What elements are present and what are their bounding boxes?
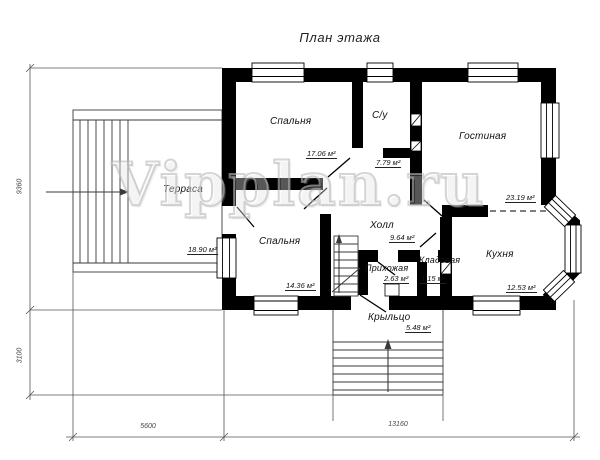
window-bathroom [367,63,393,82]
room-label-bathroom: С/у [372,110,388,121]
room-area-kitchen: 12.53 м² [506,283,537,293]
room-label-terrace: Терраса [163,184,203,195]
room-label-porch: Крыльцо [368,312,410,323]
living-door-leaf [424,200,442,216]
room-label-living: Гостиная [459,131,506,142]
room-area-hall: 9.64 м² [389,233,415,243]
room-area-bedroom2: 14.36 м² [285,281,316,291]
floor-plan-canvas: План этажа Спальня С/у Гостиная Терраса … [0,0,600,460]
door-openings [351,295,389,311]
window-bedroom2-bottom [254,296,298,315]
entrance-threshold [385,284,399,296]
room-label-bedroom2: Спальня [259,236,300,247]
room-area-terrace: 18.90 м² [187,245,218,255]
dimension-bottom-right: 13160 [368,421,428,428]
terrace-door-leaf [237,207,254,227]
bathroom-door-leaf [328,158,350,177]
window-living-right [541,103,559,158]
room-area-storage: 1.15 м² [420,274,446,284]
dimension-left-lower: 3100 [17,336,24,376]
window-bedroom1 [252,63,304,82]
room-label-hall: Холл [370,220,394,231]
room-area-bedroom1: 17.06 м² [306,149,337,159]
drawing-title: План этажа [240,30,440,45]
floor-plan-drawing [0,0,600,460]
room-area-porch: 5.48 м² [405,323,431,333]
storage-door-leaf [420,233,436,247]
dimension-left-upper: 9360 [17,167,24,207]
room-label-storage: Кладовая [419,255,460,265]
bedroom2-door-leaf [304,188,327,209]
stairs-up-arrow-icon [336,234,342,243]
room-label-entry: Прихожая [365,263,408,273]
room-area-bathroom: 7.79 м² [375,158,401,168]
stairs [332,234,360,296]
dimension-bottom-left: 5600 [118,423,178,430]
room-label-bedroom1: Спальня [270,116,311,127]
window-living [468,63,518,82]
room-area-entry: 2.63 м² [383,274,409,284]
window-kitchen-bottom [473,296,520,315]
window-bedroom2-left [217,238,236,278]
room-label-kitchen: Кухня [486,249,514,260]
bay-window-east [565,225,581,273]
porch-up-arrow-icon [385,339,392,349]
room-area-living: 23.19 м² [505,193,536,203]
